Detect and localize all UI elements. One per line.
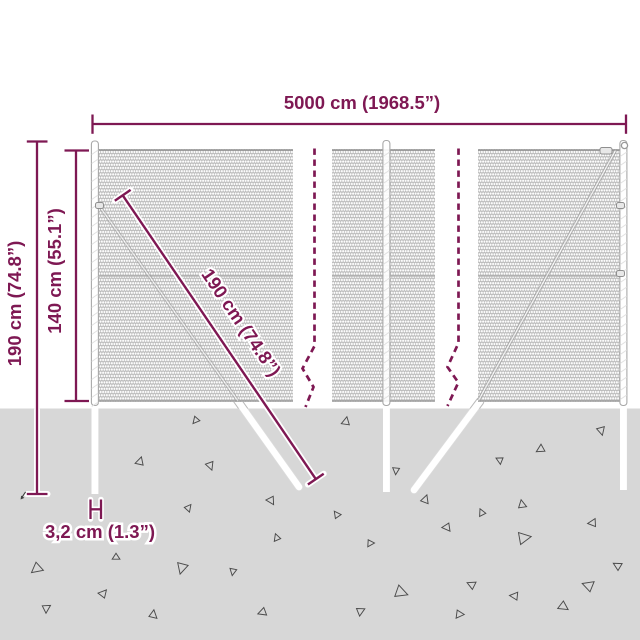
svg-text:3,2 cm (1.3”): 3,2 cm (1.3”): [45, 521, 155, 542]
svg-text:140 cm (55.1”): 140 cm (55.1”): [44, 208, 65, 333]
svg-text:5000 cm (1968.5”): 5000 cm (1968.5”): [284, 92, 440, 113]
svg-text:190 cm (74.8”): 190 cm (74.8”): [4, 241, 25, 366]
